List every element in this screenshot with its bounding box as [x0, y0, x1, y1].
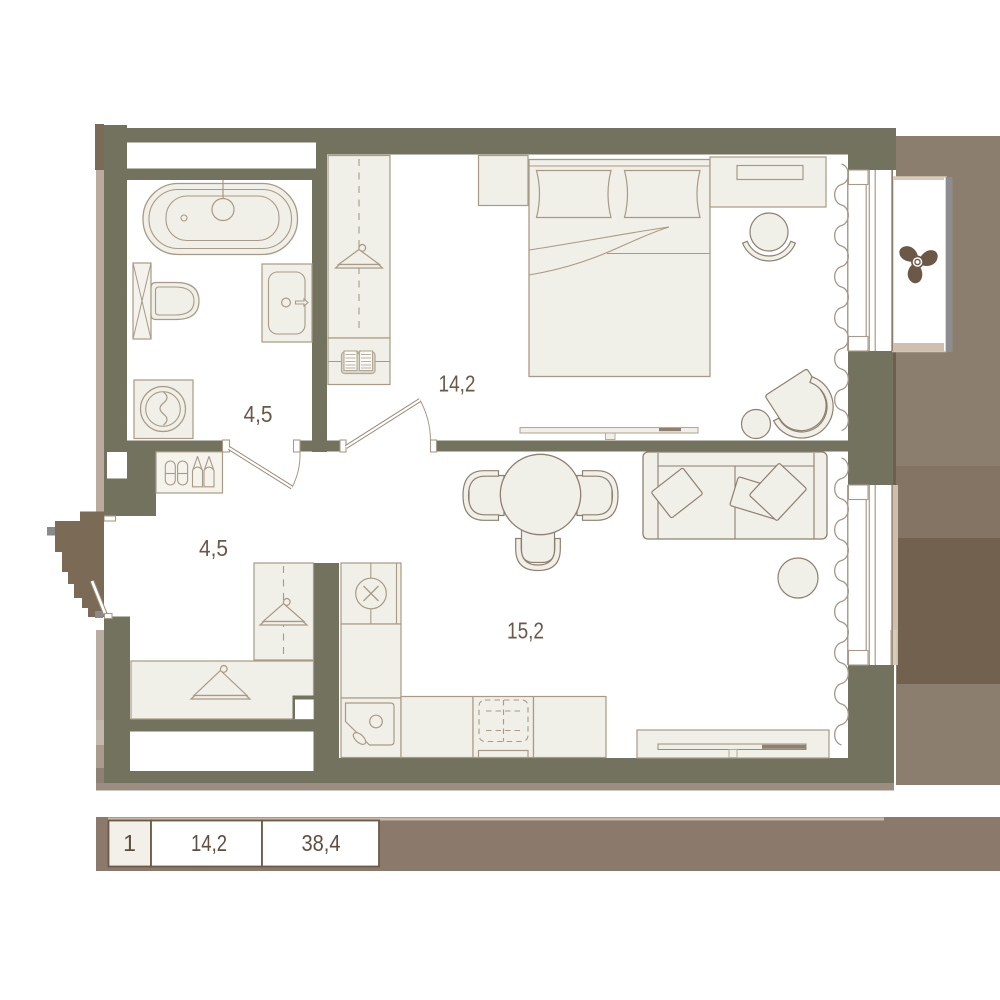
- svg-text:14,2: 14,2: [439, 371, 476, 397]
- svg-text:4,5: 4,5: [199, 535, 228, 561]
- svg-text:1: 1: [123, 830, 136, 856]
- svg-text:15,2: 15,2: [507, 618, 544, 644]
- svg-text:38,4: 38,4: [302, 830, 341, 856]
- svg-text:14,2: 14,2: [191, 830, 227, 856]
- svg-text:4,5: 4,5: [244, 401, 273, 427]
